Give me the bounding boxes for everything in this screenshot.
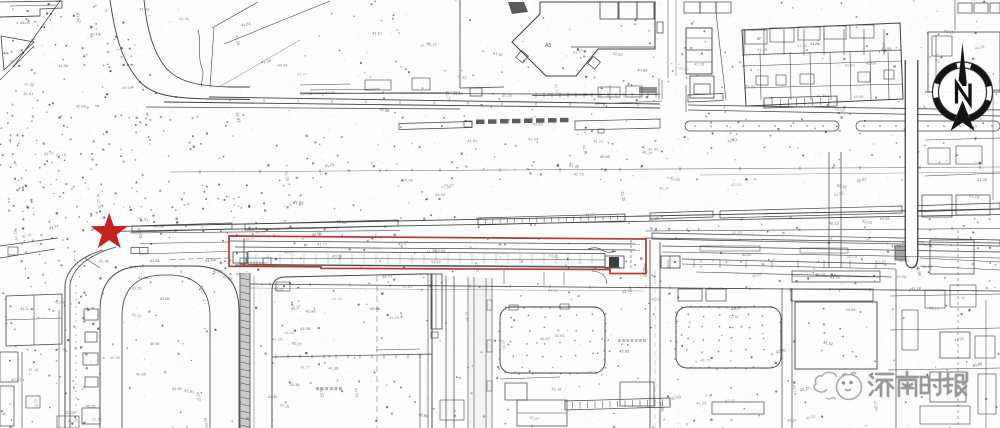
svg-text:41.36: 41.36 bbox=[179, 16, 190, 21]
svg-text:42.27: 42.27 bbox=[659, 186, 670, 191]
svg-text:42.15: 42.15 bbox=[574, 172, 585, 177]
svg-text:42.15: 42.15 bbox=[731, 182, 742, 187]
svg-text:41.93: 41.93 bbox=[435, 192, 446, 197]
svg-text:41.52: 41.52 bbox=[92, 417, 103, 422]
svg-text:6F: 6F bbox=[757, 36, 762, 41]
svg-text:41.61: 41.61 bbox=[372, 31, 383, 36]
svg-text:42.15: 42.15 bbox=[134, 265, 145, 270]
svg-text:41.08: 41.08 bbox=[150, 259, 160, 263]
svg-text:41.18: 41.18 bbox=[729, 314, 740, 319]
svg-text:41.36: 41.36 bbox=[441, 185, 452, 190]
svg-text:41.18: 41.18 bbox=[551, 387, 562, 392]
svg-text:43.02: 43.02 bbox=[20, 20, 31, 25]
svg-text:42.03: 42.03 bbox=[619, 349, 630, 354]
svg-text:41.15: 41.15 bbox=[172, 387, 182, 391]
svg-text:41.25: 41.25 bbox=[389, 315, 400, 320]
svg-text:41.07: 41.07 bbox=[540, 336, 551, 341]
svg-text:41.77: 41.77 bbox=[44, 151, 55, 156]
svg-text:40.98: 40.98 bbox=[846, 307, 857, 312]
svg-text:41.05: 41.05 bbox=[300, 326, 311, 331]
svg-text:41.36: 41.36 bbox=[817, 93, 828, 98]
svg-text:41.18: 41.18 bbox=[28, 367, 39, 372]
svg-text:42.27: 42.27 bbox=[11, 377, 22, 382]
svg-text:41.77: 41.77 bbox=[701, 358, 712, 363]
svg-text:40.98: 40.98 bbox=[110, 355, 121, 360]
svg-text:41.77: 41.77 bbox=[300, 365, 311, 370]
svg-text:41.18: 41.18 bbox=[132, 285, 143, 290]
svg-text:42.15: 42.15 bbox=[847, 254, 858, 259]
svg-text:42.03: 42.03 bbox=[866, 61, 877, 66]
svg-text:41.18: 41.18 bbox=[431, 259, 442, 264]
svg-text:41.36: 41.36 bbox=[99, 259, 110, 264]
svg-text:40.85: 40.85 bbox=[136, 372, 147, 377]
svg-text:42.15: 42.15 bbox=[68, 419, 79, 424]
svg-text:41.61: 41.61 bbox=[402, 284, 413, 289]
svg-text:40.98: 40.98 bbox=[403, 178, 414, 183]
svg-text:41.52: 41.52 bbox=[648, 147, 659, 152]
svg-text:40.98: 40.98 bbox=[150, 342, 160, 346]
svg-text:42.27: 42.27 bbox=[742, 252, 753, 257]
svg-text:41.93: 41.93 bbox=[555, 333, 566, 338]
svg-text:42.27: 42.27 bbox=[787, 418, 798, 423]
svg-text:42.15: 42.15 bbox=[829, 221, 840, 226]
svg-text:40.96: 40.96 bbox=[370, 306, 381, 311]
svg-text:40.98: 40.98 bbox=[284, 330, 295, 335]
svg-text:40.98: 40.98 bbox=[600, 154, 611, 159]
svg-text:40.98: 40.98 bbox=[332, 253, 343, 258]
svg-text:41.86: 41.86 bbox=[810, 41, 821, 46]
svg-text:A3: A3 bbox=[545, 43, 551, 49]
svg-text:41.18: 41.18 bbox=[56, 152, 67, 157]
svg-text:41.93: 41.93 bbox=[528, 136, 539, 141]
svg-text:41.25: 41.25 bbox=[757, 47, 768, 52]
svg-text:40.98: 40.98 bbox=[896, 274, 907, 279]
svg-text:42.15: 42.15 bbox=[90, 31, 101, 36]
svg-text:41.25: 41.25 bbox=[696, 401, 707, 406]
svg-text:41.52: 41.52 bbox=[548, 287, 559, 292]
svg-text:40.98: 40.98 bbox=[637, 67, 648, 72]
svg-text:41.18: 41.18 bbox=[797, 43, 808, 48]
svg-text:41.36: 41.36 bbox=[328, 365, 339, 370]
svg-text:40.98: 40.98 bbox=[122, 85, 133, 90]
svg-text:41.05: 41.05 bbox=[160, 297, 170, 301]
svg-text:40.98: 40.98 bbox=[854, 94, 865, 99]
svg-text:42.03: 42.03 bbox=[76, 104, 87, 109]
svg-text:41.18: 41.18 bbox=[290, 383, 300, 387]
svg-text:41.36: 41.36 bbox=[58, 63, 69, 68]
svg-text:40.98: 40.98 bbox=[278, 62, 289, 67]
svg-text:41.52: 41.52 bbox=[55, 300, 66, 305]
svg-text:41.52: 41.52 bbox=[24, 81, 35, 86]
svg-text:41.61: 41.61 bbox=[23, 91, 34, 96]
svg-text:41.93: 41.93 bbox=[306, 308, 317, 313]
svg-text:41.93: 41.93 bbox=[332, 296, 343, 301]
svg-text:41.77: 41.77 bbox=[297, 72, 308, 77]
svg-text:41.36: 41.36 bbox=[268, 394, 279, 399]
svg-text:41.36: 41.36 bbox=[977, 177, 988, 182]
svg-text:41.61: 41.61 bbox=[467, 138, 478, 143]
svg-text:41.3: 41.3 bbox=[20, 306, 29, 311]
svg-text:41.18: 41.18 bbox=[272, 337, 283, 342]
